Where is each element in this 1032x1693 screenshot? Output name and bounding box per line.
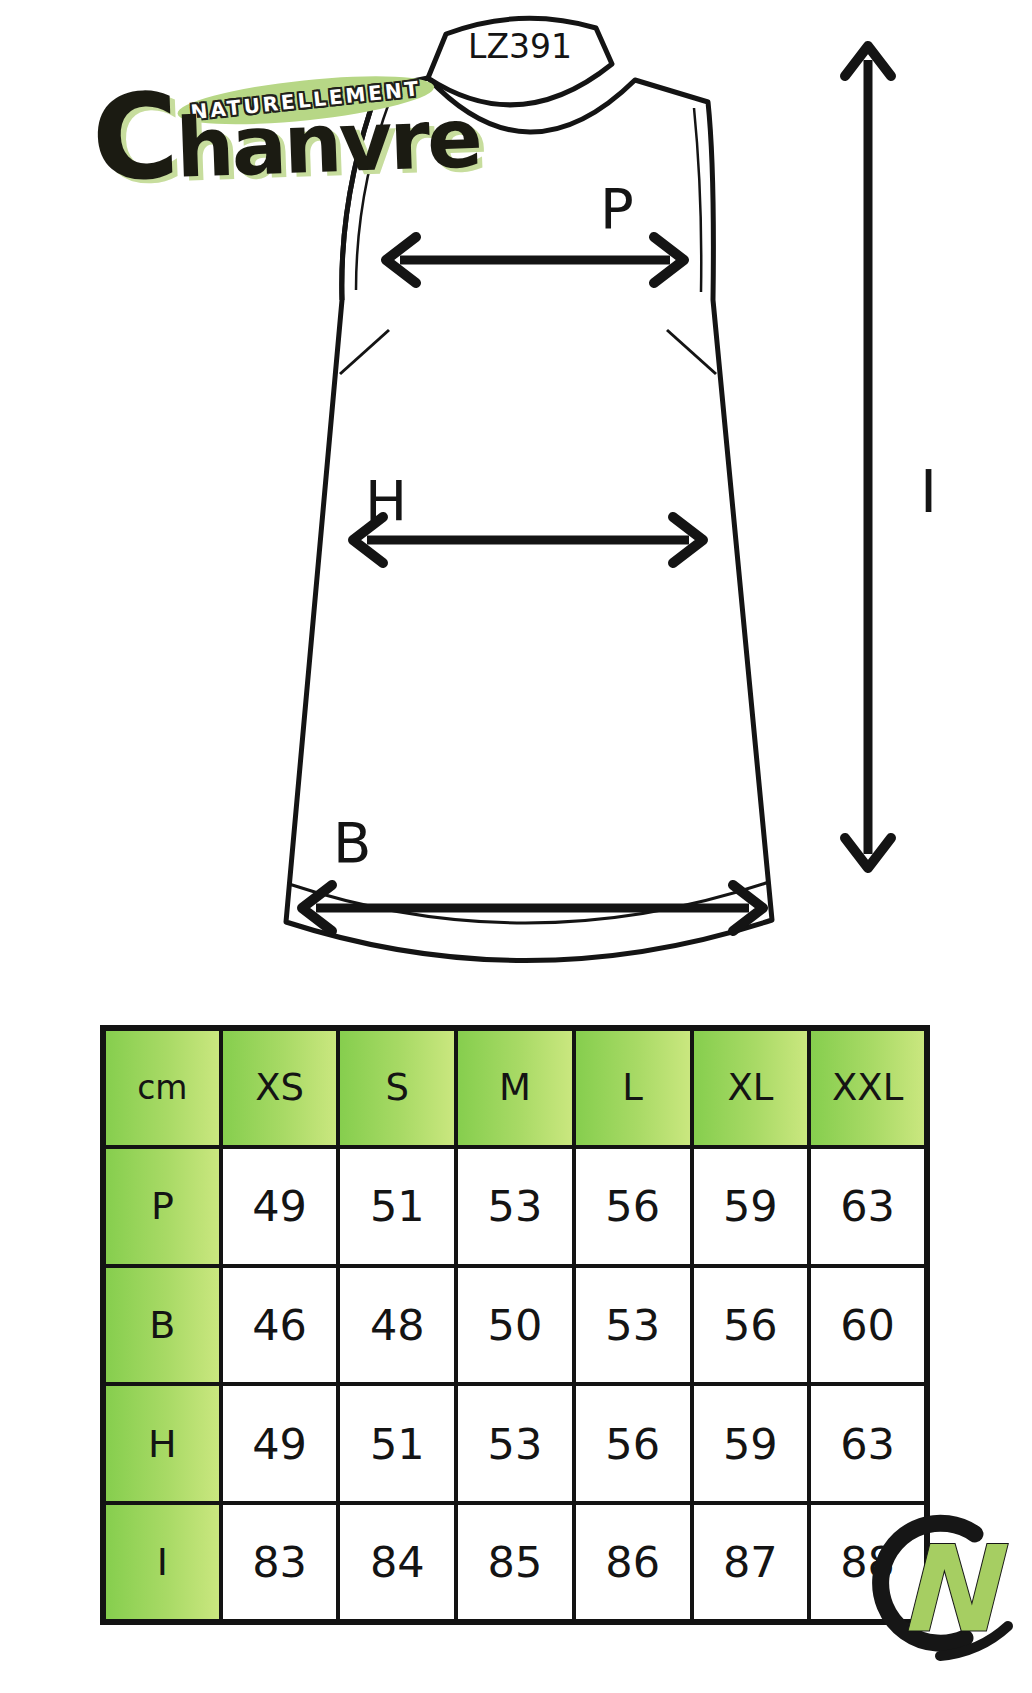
size-cell: 59 (692, 1384, 810, 1503)
row-label-b: B (103, 1266, 221, 1385)
size-cell: 60 (809, 1266, 927, 1385)
size-guide-page: LZ391 P H B I NATURELLEMENT Chanvre cm (0, 0, 1032, 1693)
size-col-m: M (456, 1028, 574, 1147)
size-cell: 46 (221, 1266, 339, 1385)
size-cell: 63 (809, 1147, 927, 1266)
size-cell: 51 (338, 1384, 456, 1503)
size-table: cm XS S M L XL XXL P 49 51 53 56 59 63 B… (100, 1025, 930, 1625)
size-cell: 49 (221, 1384, 339, 1503)
brand-monogram: N (845, 1416, 1020, 1681)
brand-name: Chanvre (90, 66, 481, 197)
row-label-p: P (103, 1147, 221, 1266)
size-cell: 56 (692, 1266, 810, 1385)
size-cell: 83 (221, 1503, 339, 1622)
size-cell: 48 (338, 1266, 456, 1385)
size-col-l: L (574, 1028, 692, 1147)
size-cell: 51 (338, 1147, 456, 1266)
table-row-length: I 83 84 85 86 87 88 (103, 1503, 927, 1622)
collar-model-code: LZ391 (468, 27, 572, 66)
size-cell: 56 (574, 1384, 692, 1503)
brand-logo: NATURELLEMENT Chanvre (89, 52, 424, 213)
row-label-h: H (103, 1384, 221, 1503)
size-cell: 53 (574, 1266, 692, 1385)
bottom-measure-label: B (333, 810, 371, 875)
size-cell: 53 (456, 1147, 574, 1266)
table-row-hip: H 49 51 53 56 59 63 (103, 1384, 927, 1503)
row-label-i: I (103, 1503, 221, 1622)
unit-header-cell: cm (103, 1028, 221, 1147)
chest-measure-label: P (600, 176, 634, 241)
size-col-s: S (338, 1028, 456, 1147)
size-cell: 53 (456, 1384, 574, 1503)
hip-measure-label: H (365, 468, 407, 533)
monogram-n-letter: N (897, 1520, 1009, 1659)
size-cell: 85 (456, 1503, 574, 1622)
length-measure-label: I (920, 458, 937, 526)
size-cell: 87 (692, 1503, 810, 1622)
size-cell: 86 (574, 1503, 692, 1622)
size-cell: 49 (221, 1147, 339, 1266)
size-cell: 84 (338, 1503, 456, 1622)
size-cell: 59 (692, 1147, 810, 1266)
table-row-bottom: B 46 48 50 53 56 60 (103, 1266, 927, 1385)
size-cell: 56 (574, 1147, 692, 1266)
table-row-chest: P 49 51 53 56 59 63 (103, 1147, 927, 1266)
size-col-xs: XS (221, 1028, 339, 1147)
size-cell: 50 (456, 1266, 574, 1385)
size-col-xxl: XXL (809, 1028, 927, 1147)
size-col-xl: XL (692, 1028, 810, 1147)
size-table-header-row: cm XS S M L XL XXL (103, 1028, 927, 1147)
